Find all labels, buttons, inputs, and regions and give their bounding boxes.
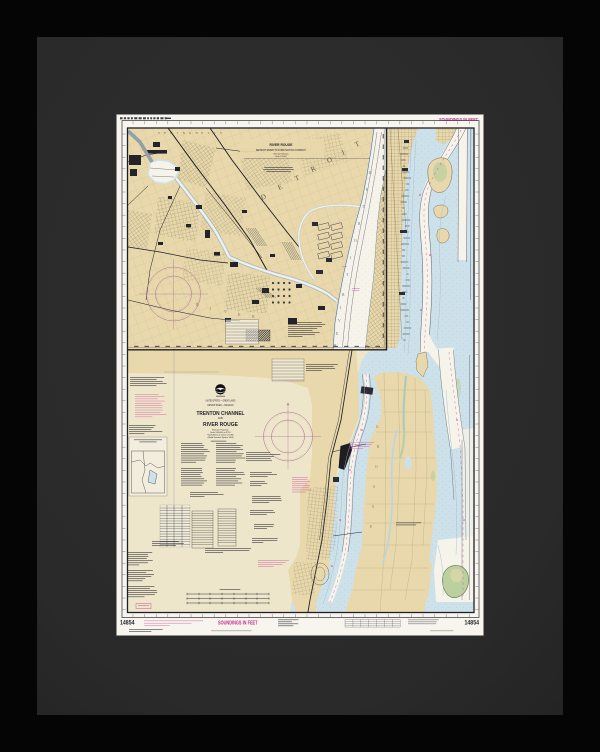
svg-text:DETROIT RIVER — MICHIGAN: DETROIT RIVER — MICHIGAN xyxy=(208,403,234,407)
svg-text:L: L xyxy=(208,131,210,135)
svg-text:P: P xyxy=(164,131,166,135)
svg-text:14854: 14854 xyxy=(120,620,135,627)
svg-text:SOUNDINGS IN FEET: SOUNDINGS IN FEET xyxy=(439,117,478,123)
svg-text:S: S xyxy=(372,505,374,509)
svg-text:G: G xyxy=(376,425,379,429)
svg-text:O: O xyxy=(354,239,357,243)
svg-text:R: R xyxy=(252,314,255,319)
svg-text:Scale 1:15,000: Scale 1:15,000 xyxy=(275,156,286,158)
svg-text:SOUNDINGS IN FEET: SOUNDINGS IN FEET xyxy=(218,620,258,626)
svg-text:DETROIT RIVER TO FORD MOTOR CO: DETROIT RIVER TO FORD MOTOR COMPANY xyxy=(256,149,306,152)
svg-text:W: W xyxy=(195,131,198,135)
svg-text:14854: 14854 xyxy=(465,620,480,627)
svg-text:AND: AND xyxy=(218,417,223,420)
svg-text:I: I xyxy=(177,131,178,135)
svg-text:RIVER ROUGE: RIVER ROUGE xyxy=(203,422,238,428)
svg-text:S: S xyxy=(220,131,222,135)
svg-text:O: O xyxy=(375,465,378,469)
svg-text:E: E xyxy=(201,131,203,135)
svg-text:S: S xyxy=(373,485,375,489)
svg-text:V: V xyxy=(338,319,341,323)
svg-text:(World Geodetic System 1984): (World Geodetic System 1984) xyxy=(208,436,234,439)
svg-text:D: D xyxy=(369,171,372,175)
svg-text:RIVER ROUGE: RIVER ROUGE xyxy=(270,143,294,147)
svg-text:V: V xyxy=(224,309,227,314)
svg-text:UNITED STATES — GREAT LAKES: UNITED STATES — GREAT LAKES xyxy=(206,398,236,402)
svg-text:S: S xyxy=(158,131,160,135)
